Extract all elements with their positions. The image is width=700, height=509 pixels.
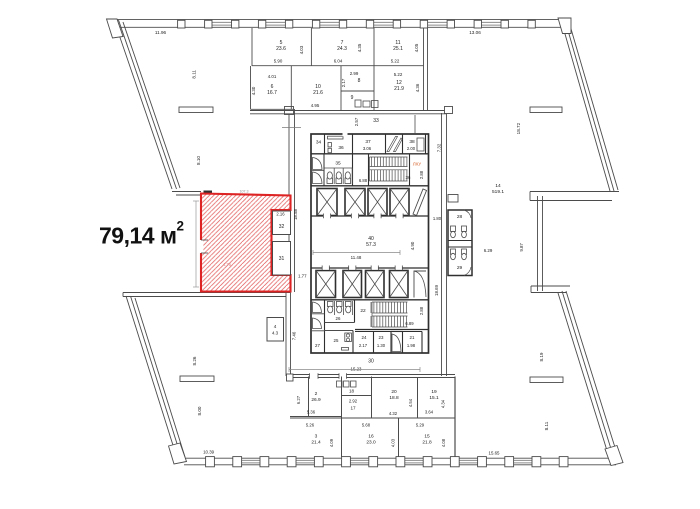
svg-text:15: 15 [424,434,430,440]
svg-text:6.27: 6.27 [296,395,301,404]
svg-text:4.05: 4.05 [414,43,419,52]
svg-text:1.80: 1.80 [433,216,442,221]
svg-text:4.90: 4.90 [410,241,415,250]
svg-text:4: 4 [274,324,277,329]
svg-text:4.3: 4.3 [272,331,279,336]
svg-text:21.4: 21.4 [311,440,321,446]
svg-text:26: 26 [336,316,341,321]
svg-text:17: 17 [350,406,356,411]
svg-text:6.04: 6.04 [334,59,343,64]
svg-text:32: 32 [279,224,285,230]
svg-text:5.29: 5.29 [416,423,425,428]
svg-text:10.39: 10.39 [203,450,215,455]
svg-text:2.57: 2.57 [354,117,359,126]
svg-text:25.1: 25.1 [393,46,403,52]
svg-text:79,14 м2: 79,14 м2 [99,219,183,249]
svg-text:16.7: 16.7 [267,90,277,96]
svg-text:4.09: 4.09 [329,438,334,447]
svg-text:107.3: 107.3 [240,190,249,194]
svg-text:8.00: 8.00 [197,406,202,415]
svg-text:4.34: 4.34 [440,399,445,408]
svg-text:8.10: 8.10 [196,156,201,165]
svg-text:6.29: 6.29 [484,248,493,253]
svg-text:3.06: 3.06 [363,146,372,151]
svg-text:21.6: 21.6 [313,90,323,96]
svg-text:29: 29 [457,265,463,271]
svg-text:2.16: 2.16 [276,212,285,217]
svg-text:2.88: 2.88 [419,170,424,179]
svg-text:13.06: 13.06 [469,30,481,35]
svg-text:18.8: 18.8 [389,395,399,401]
svg-text:4.30: 4.30 [251,86,256,95]
svg-text:26.9: 26.9 [311,397,321,403]
svg-text:7.46: 7.46 [292,331,297,340]
svg-text:25: 25 [334,338,339,343]
svg-text:57.3: 57.3 [366,242,376,248]
svg-text:11.96: 11.96 [155,30,167,35]
svg-text:ЛХУ: ЛХУ [413,162,422,167]
svg-text:21: 21 [410,335,415,340]
svg-text:21.9: 21.9 [394,86,404,92]
svg-text:6.89: 6.89 [405,321,414,326]
svg-text:8.11: 8.11 [544,421,549,430]
svg-text:15.1: 15.1 [429,395,439,401]
svg-text:4.36: 4.36 [415,83,420,92]
svg-text:33: 33 [373,118,379,124]
svg-text:9.87: 9.87 [519,243,524,252]
svg-text:38: 38 [409,139,415,145]
svg-text:3.64: 3.64 [425,410,434,415]
svg-text:4.35: 4.35 [357,43,362,52]
svg-text:37: 37 [365,139,371,145]
svg-text:4.75: 4.75 [223,262,232,267]
svg-text:28: 28 [457,214,463,220]
svg-text:22: 22 [360,308,366,314]
svg-text:36: 36 [338,145,344,151]
svg-text:15.23: 15.23 [351,367,363,372]
svg-text:19: 19 [431,389,437,395]
svg-text:4.32: 4.32 [389,411,398,416]
svg-text:5.22: 5.22 [394,72,403,77]
svg-text:31: 31 [279,256,285,262]
svg-text:2.99: 2.99 [350,71,359,76]
svg-text:2.00: 2.00 [407,146,416,151]
svg-text:23: 23 [379,335,384,340]
svg-text:8: 8 [358,78,361,84]
svg-text:1.30: 1.30 [377,343,386,348]
svg-text:14: 14 [495,183,501,189]
svg-text:15.65: 15.65 [489,451,501,456]
svg-text:3: 3 [315,434,318,440]
svg-text:27: 27 [315,343,320,348]
svg-text:5.68: 5.68 [362,423,371,428]
svg-text:2.88: 2.88 [419,306,424,315]
svg-text:18.58: 18.58 [293,208,298,220]
svg-text:16: 16 [368,434,374,440]
svg-text:18.69: 18.69 [434,284,439,296]
svg-text:18.72: 18.72 [516,122,521,134]
svg-text:4.03: 4.03 [391,438,396,447]
svg-text:9: 9 [351,95,354,101]
svg-text:11.48: 11.48 [351,255,362,260]
svg-text:34: 34 [316,140,322,146]
svg-text:18: 18 [349,389,355,394]
svg-text:1.77: 1.77 [298,274,307,279]
svg-text:5.36: 5.36 [307,410,316,415]
svg-text:4.03: 4.03 [299,45,304,54]
svg-text:4.08: 4.08 [441,438,446,447]
svg-text:2: 2 [315,391,318,397]
svg-text:2.17: 2.17 [359,343,368,348]
svg-text:21.8: 21.8 [422,440,432,446]
svg-text:2.17: 2.17 [341,78,346,87]
svg-text:5.22: 5.22 [391,59,400,64]
svg-text:35: 35 [335,161,341,167]
svg-text:36: 36 [406,175,411,180]
svg-text:8.26: 8.26 [192,356,197,365]
svg-text:5.26: 5.26 [306,423,315,428]
svg-text:7.32: 7.32 [437,143,442,152]
svg-text:5.90: 5.90 [274,59,283,64]
svg-text:30: 30 [368,359,374,365]
svg-text:23.6: 23.6 [276,46,286,52]
svg-text:20: 20 [391,389,397,395]
svg-text:8.11: 8.11 [192,70,197,79]
svg-text:24: 24 [362,335,367,340]
svg-text:519.1: 519.1 [492,189,504,195]
svg-text:4.54: 4.54 [408,398,413,407]
svg-text:4.01: 4.01 [268,74,277,79]
svg-text:4.95: 4.95 [311,103,320,108]
svg-text:23.0: 23.0 [366,440,376,446]
svg-text:2.92: 2.92 [349,399,358,404]
svg-text:1.98: 1.98 [407,343,416,348]
svg-text:6.88: 6.88 [359,178,368,183]
svg-text:8.19: 8.19 [539,352,544,361]
svg-text:24.3: 24.3 [337,46,347,52]
